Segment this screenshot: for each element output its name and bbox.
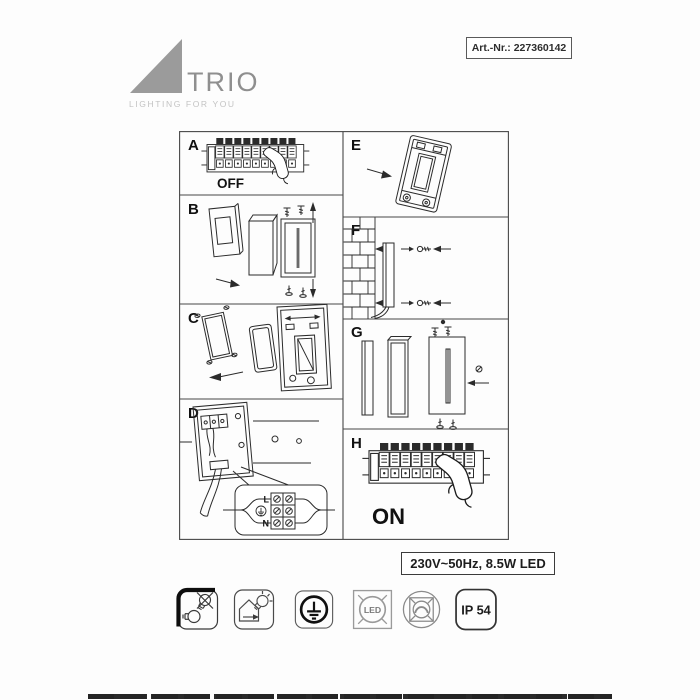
panel-g: G [351,320,489,430]
not-dimmable-icon [400,587,443,632]
svg-text:C: C [188,310,199,327]
panel-b: B [188,201,316,298]
brand-tagline: LIGHTING FOR YOU [129,99,236,109]
panel-a: A OFF [188,137,309,191]
rating-box: 230V~50Hz, 8.5W LED [401,552,555,575]
brand-name: TRIO [187,67,260,98]
page-edge-strip [88,694,612,699]
manual-page: TRIO LIGHTING FOR YOU Art.-Nr.: 22736014… [0,0,700,700]
neutral-terminal-label: N [263,519,270,529]
off-label: OFF [217,176,244,191]
svg-text:E: E [351,137,361,154]
indoor-use-icon [232,587,276,632]
instruction-diagram: A OFF B [179,131,509,540]
led-not-replaceable-icon: LED [350,587,395,632]
panel-h: H ON [351,435,490,529]
ip54-rating-icon: IP 54 [452,587,500,632]
svg-text:B: B [188,201,199,218]
panel-e: E [351,135,452,213]
bulb-replacement-icon [176,587,220,632]
panel-f: F [344,218,451,320]
panel-d: D [180,402,335,535]
ip54-label: IP 54 [461,603,491,618]
svg-text:G: G [351,324,363,341]
trio-logo-triangle [130,39,184,94]
live-terminal-label: L [264,495,270,505]
protection-class-1-icon [293,587,335,632]
panel-c: C [188,304,331,391]
svg-text:H: H [351,435,362,452]
svg-text:A: A [188,137,199,154]
article-number-box: Art.-Nr.: 227360142 [466,37,572,59]
on-label: ON [372,504,405,529]
led-label: LED [364,605,381,615]
